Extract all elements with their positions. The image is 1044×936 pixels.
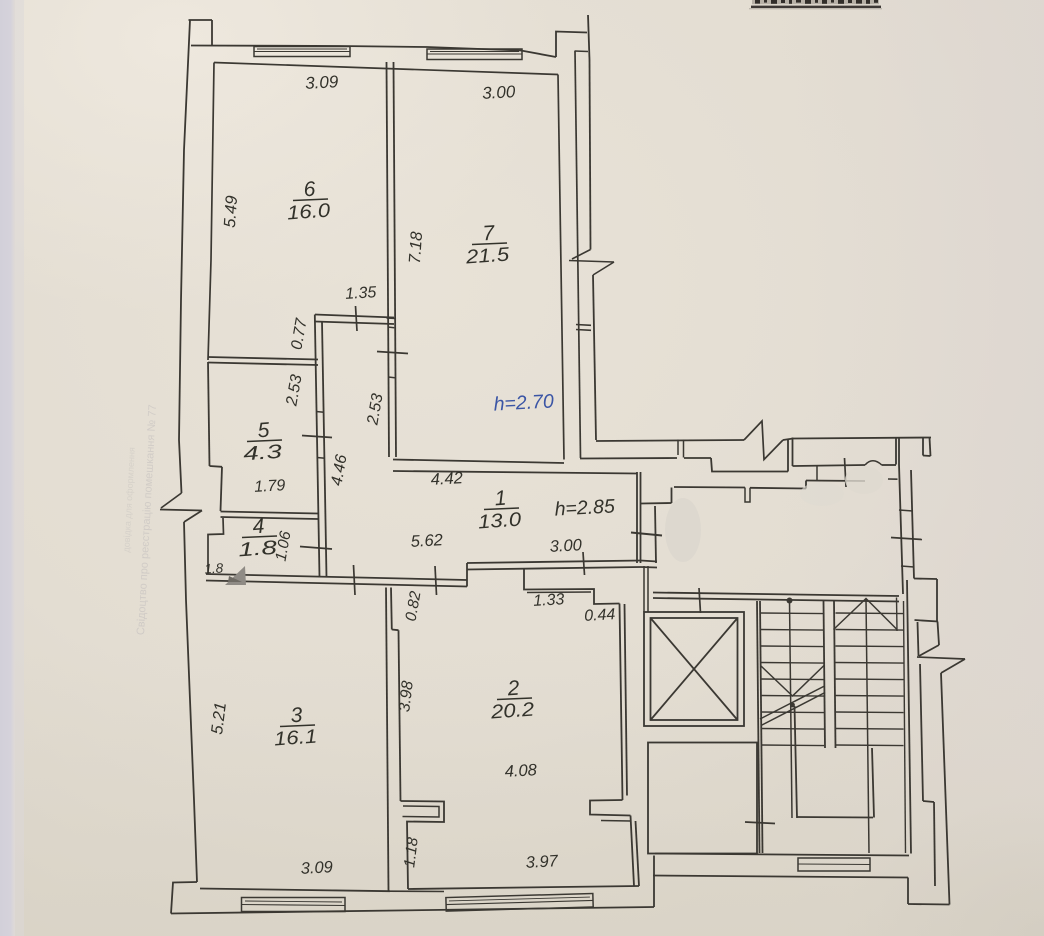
svg-text:3.97: 3.97 [525,852,559,872]
svg-text:5.49: 5.49 [221,195,241,228]
svg-text:6: 6 [303,178,317,202]
svg-text:16.0: 16.0 [286,200,331,225]
svg-text:2: 2 [506,677,521,701]
svg-text:3.00: 3.00 [482,82,517,103]
svg-text:3.00: 3.00 [549,536,583,556]
svg-text:16.1: 16.1 [273,726,317,751]
svg-text:4.42: 4.42 [430,469,463,489]
svg-text:1.33: 1.33 [533,591,565,610]
svg-text:4.08: 4.08 [504,761,538,781]
svg-text:1.8: 1.8 [238,537,278,562]
svg-text:4.3: 4.3 [243,441,283,466]
svg-text:h=2.70: h=2.70 [493,390,554,415]
svg-text:0.44: 0.44 [584,606,616,625]
svg-text:13.0: 13.0 [477,509,522,534]
svg-text:1.79: 1.79 [254,477,286,496]
svg-text:5.62: 5.62 [410,531,443,551]
svg-text:3: 3 [290,704,304,728]
svg-text:20.2: 20.2 [489,699,535,724]
svg-text:4: 4 [252,515,265,539]
svg-text:7.18: 7.18 [406,230,426,264]
svg-text:3.09: 3.09 [305,72,340,93]
svg-text:1.8: 1.8 [204,561,224,577]
svg-text:3.09: 3.09 [300,858,333,878]
svg-text:h=2.85: h=2.85 [554,495,615,520]
svg-text:1.35: 1.35 [345,284,377,303]
svg-text:1: 1 [494,487,507,511]
svg-text:21.5: 21.5 [464,244,510,269]
svg-text:5: 5 [257,419,271,443]
